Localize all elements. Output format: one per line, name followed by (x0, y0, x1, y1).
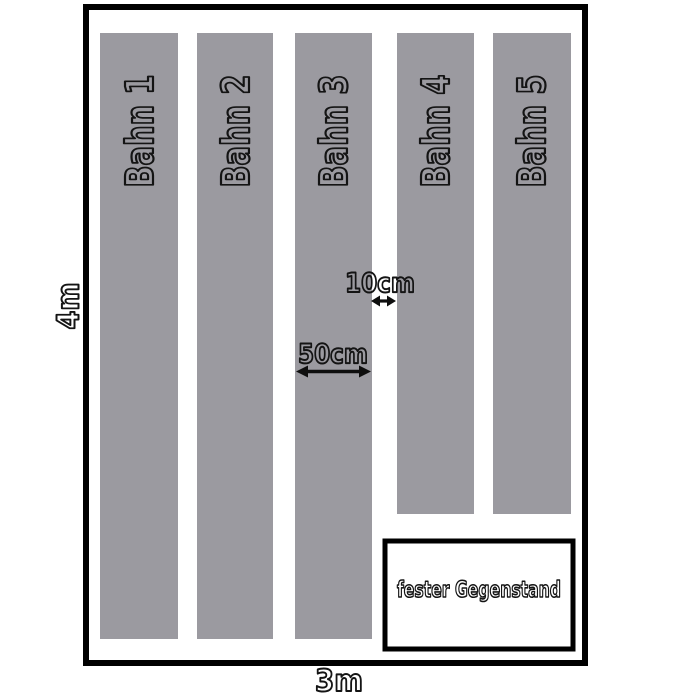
lane-label-3: Bahn 3 (312, 75, 356, 188)
diagram-svg: Bahn 1 Bahn 2 Bahn 3 Bahn 4 Bahn 5 4m 3m… (0, 0, 700, 700)
field-width-label: 3m (315, 664, 363, 699)
lane-label-5: Bahn 5 (510, 75, 554, 188)
obstacle-label: fester Gegenstand (397, 578, 561, 603)
lane-label-2: Bahn 2 (214, 75, 258, 188)
lane-gap-label: 10cm (345, 268, 415, 299)
lane-label-1: Bahn 1 (118, 75, 162, 188)
lane-label-4: Bahn 4 (414, 75, 458, 188)
field-height-label: 4m (52, 283, 87, 330)
lane-width-label: 50cm (298, 339, 368, 370)
lane-layout-diagram: Bahn 1 Bahn 2 Bahn 3 Bahn 4 Bahn 5 4m 3m… (0, 0, 700, 700)
